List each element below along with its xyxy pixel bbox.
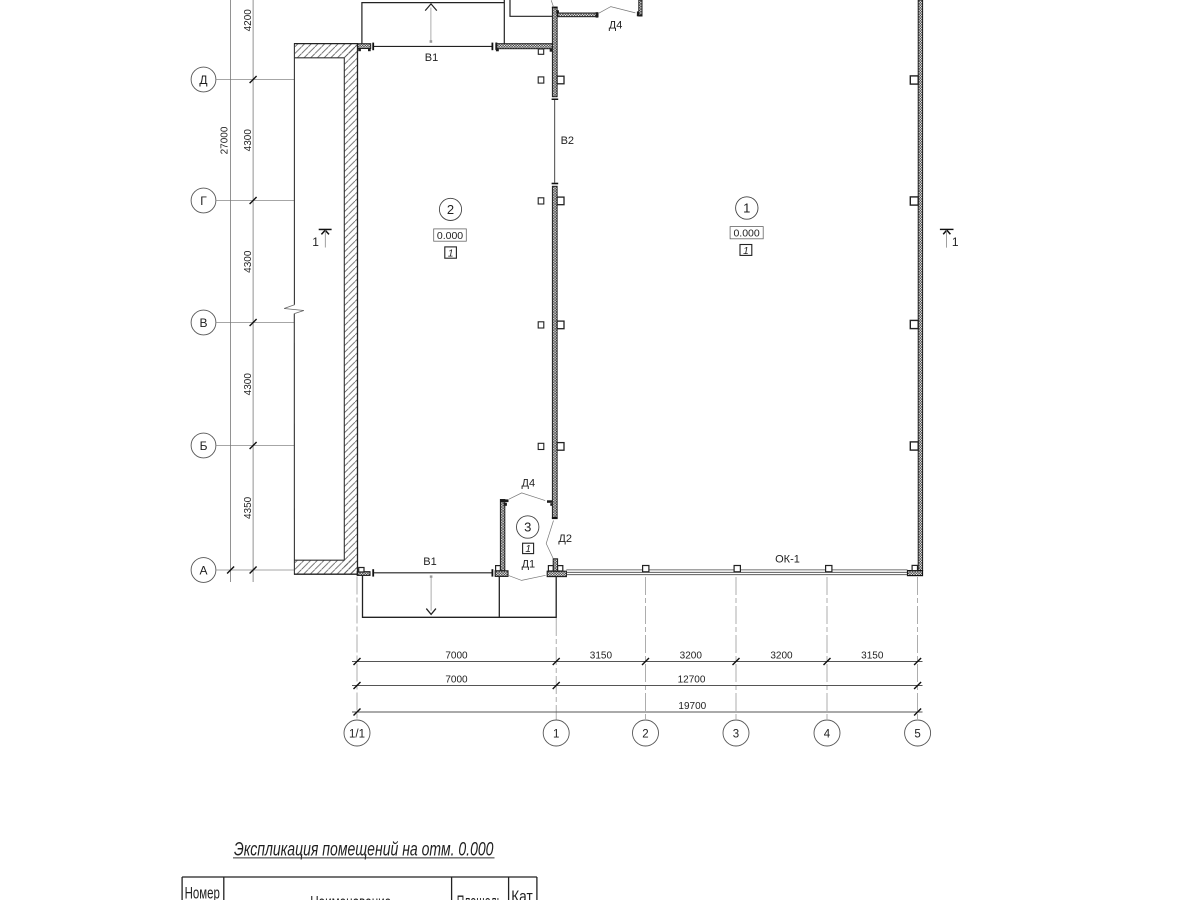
svg-text:В1: В1 [425,52,438,64]
svg-text:1: 1 [448,249,454,260]
svg-text:Д4: Д4 [522,478,536,490]
svg-text:4300: 4300 [243,129,254,152]
svg-text:3150: 3150 [861,650,884,661]
svg-text:Д1: Д1 [522,559,536,571]
svg-text:1/1: 1/1 [349,728,365,740]
svg-text:7000: 7000 [445,650,468,661]
svg-text:Д4: Д4 [609,20,623,32]
svg-text:1: 1 [525,544,531,555]
svg-text:7000: 7000 [445,674,468,685]
svg-text:4300: 4300 [243,373,254,396]
svg-text:Кат.: Кат. [511,888,535,900]
svg-text:27000: 27000 [219,126,230,154]
svg-text:Номер: Номер [185,885,220,900]
svg-text:2: 2 [447,202,454,217]
svg-text:3: 3 [733,728,739,740]
svg-text:Б: Б [200,439,208,453]
svg-text:0.000: 0.000 [733,228,759,240]
svg-text:4350: 4350 [243,496,254,519]
svg-text:1: 1 [743,201,750,216]
svg-text:1: 1 [952,235,959,249]
svg-text:1: 1 [312,235,319,249]
svg-text:3200: 3200 [770,650,793,661]
svg-text:А: А [199,563,207,577]
svg-text:ОК-1: ОК-1 [775,553,800,565]
svg-text:3150: 3150 [590,650,613,661]
svg-text:Площадь: Площадь [457,893,503,900]
svg-text:Г: Г [200,194,207,208]
svg-text:5: 5 [914,728,920,740]
svg-text:4300: 4300 [243,250,254,273]
svg-text:В1: В1 [423,556,436,568]
svg-text:1: 1 [743,246,749,257]
svg-text:12700: 12700 [678,674,706,685]
svg-text:0.000: 0.000 [437,230,463,242]
svg-text:В: В [199,316,207,330]
svg-text:4: 4 [824,728,831,740]
svg-text:2: 2 [642,728,648,740]
svg-text:3200: 3200 [680,650,703,661]
svg-text:Д: Д [199,73,207,87]
svg-text:3: 3 [524,520,531,535]
svg-text:1: 1 [553,728,559,740]
svg-text:19700: 19700 [678,701,706,712]
svg-text:4200: 4200 [243,9,254,32]
svg-text:Наименование: Наименование [310,893,391,900]
svg-text:В2: В2 [561,135,574,147]
svg-text:Д2: Д2 [558,533,572,545]
